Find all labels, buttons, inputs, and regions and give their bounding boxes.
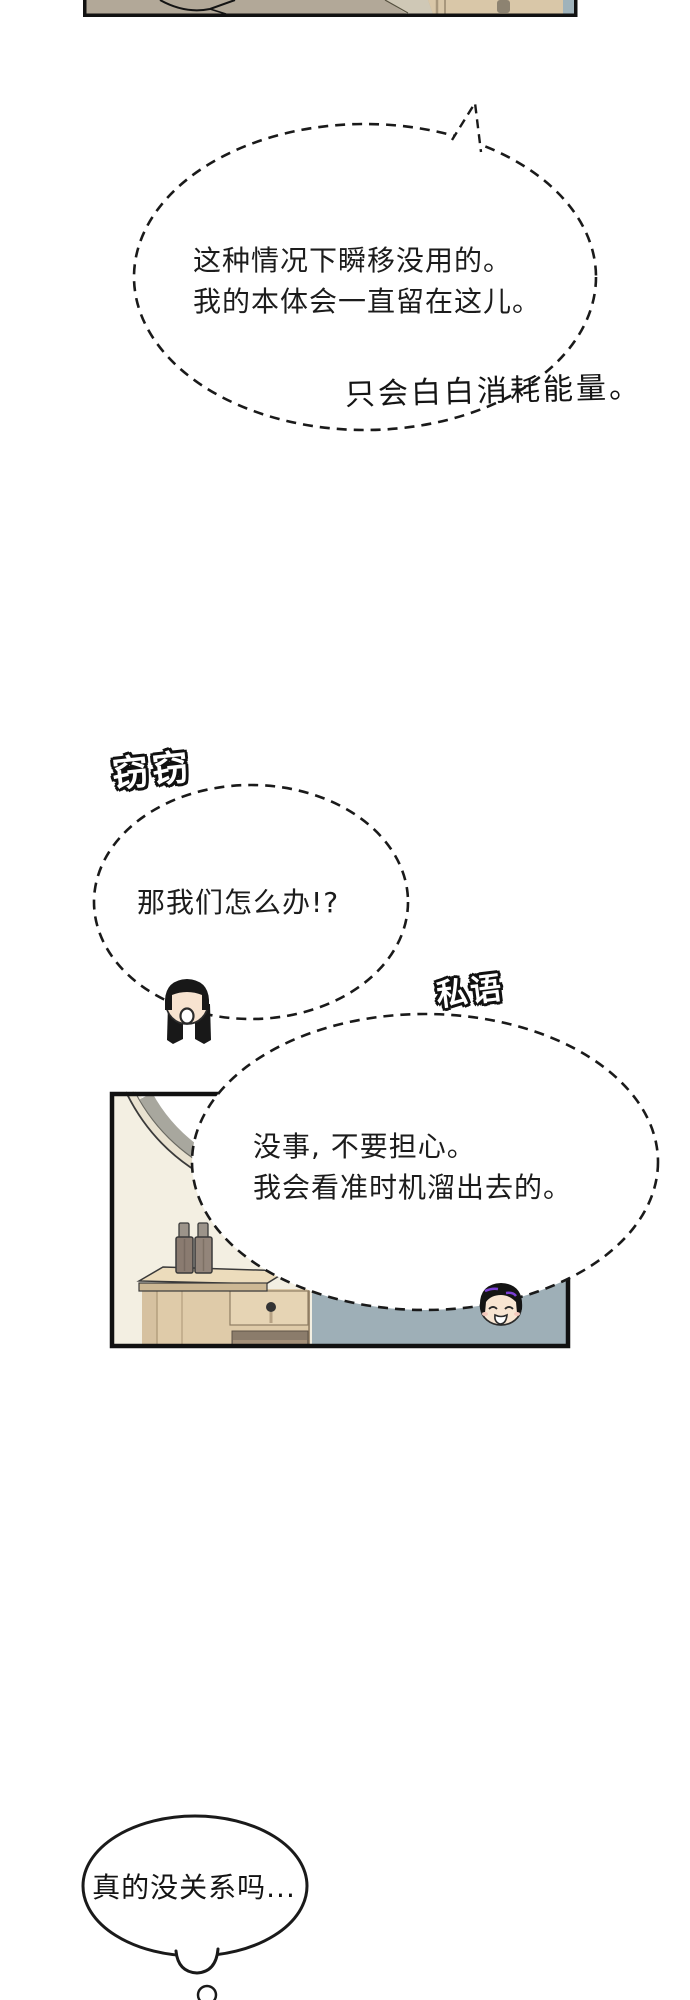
speech-text-dont-worry-line1: 没事, 不要担心。 [253,1126,572,1167]
girl-character-head [165,979,211,1044]
girl-open-mouth [181,1009,194,1024]
whisper-label-right: 私语 [434,962,507,1015]
speech-text-teleport-line1: 这种情况下瞬移没用的。 [193,240,541,281]
whisper-label-left: 窃窃 [110,738,195,798]
top-panel-strip [83,0,578,17]
thought-bubble-really-ok [83,1816,307,2000]
thought-text-really-ok: 真的没关系吗... [86,1870,302,1906]
speech-text-dont-worry-line2: 我会看准时机溜出去的。 [253,1167,572,1208]
thought-bubble-bump [176,1949,218,1973]
comic-page: 这种情况下瞬移没用的。 我的本体会一直留在这儿。 只会白白消耗能量。 窃窃 那我… [0,0,690,2000]
speech-text-what-now: 那我们怎么办!? [137,886,339,920]
drawer-knob [266,1302,276,1312]
strip-border-bottom [83,14,578,18]
thought-trail-circle [198,1986,216,2000]
nightstand-top [139,1267,287,1284]
speech-text-teleport: 这种情况下瞬移没用的。 我的本体会一直留在这儿。 [193,240,541,322]
speech-text-teleport-line2: 我的本体会一直留在这儿。 [193,281,541,322]
boy-character-head [480,1283,522,1325]
speech-text-dont-worry: 没事, 不要担心。 我会看准时机溜出去的。 [253,1126,572,1208]
